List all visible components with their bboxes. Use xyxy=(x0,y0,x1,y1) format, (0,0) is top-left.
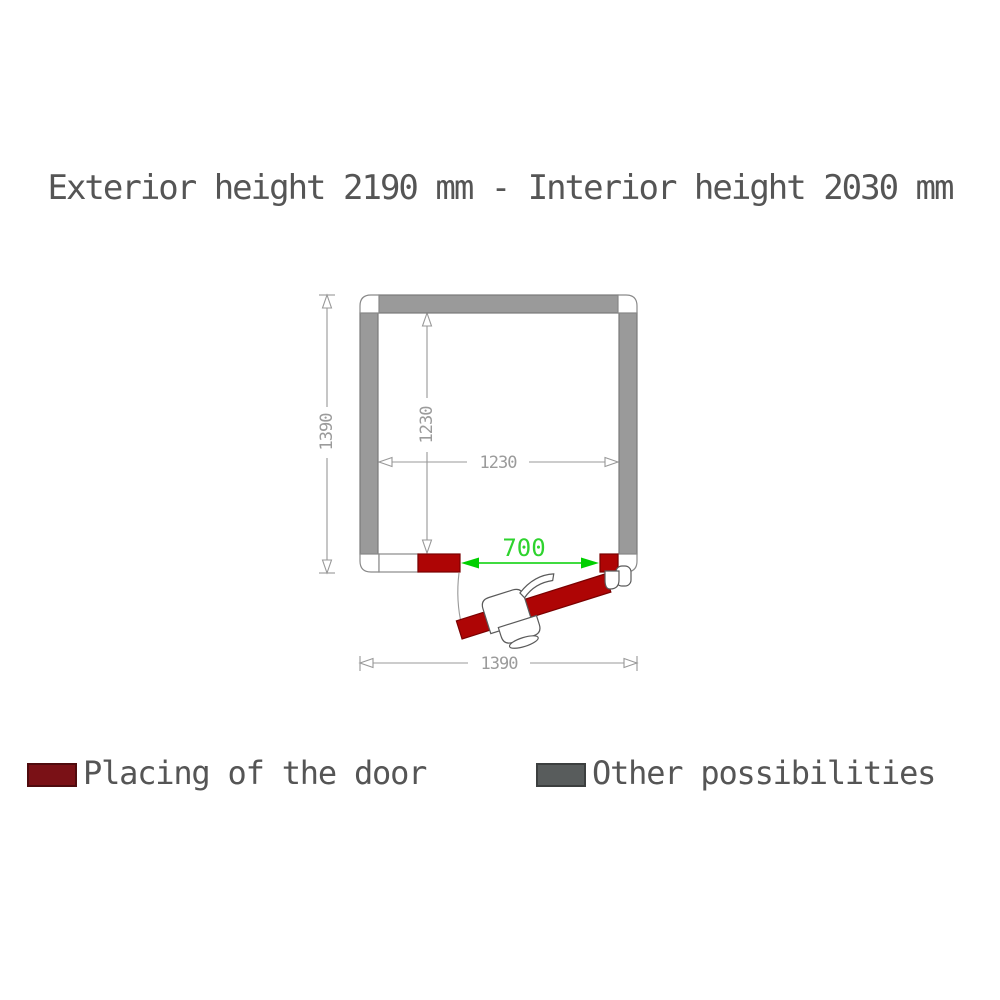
green-arrow-right-icon xyxy=(581,558,599,569)
green-arrow-left-icon xyxy=(461,558,479,569)
dimension-interior-height: 1230 xyxy=(417,313,437,553)
door-jamb-left xyxy=(418,554,460,572)
legend-item-door: Placing of the door xyxy=(27,758,426,792)
arrow-up-icon xyxy=(423,313,432,326)
dimension-exterior-height-label: 1390 xyxy=(317,413,337,451)
hinge-pin-icon xyxy=(605,571,619,589)
door-jamb-right xyxy=(600,554,618,572)
corner-bottom-left xyxy=(360,554,379,572)
door-color-swatch-icon xyxy=(27,763,77,787)
arrow-left-icon xyxy=(379,458,392,467)
dimension-interior-height-label: 1230 xyxy=(417,406,437,444)
arrow-down-icon xyxy=(323,560,332,573)
dimension-interior-width-label: 1230 xyxy=(480,453,518,473)
walls xyxy=(360,295,637,572)
wall-right xyxy=(619,313,637,554)
legend-label-door: Placing of the door xyxy=(83,754,426,792)
dimension-exterior-height: 1390 xyxy=(317,295,337,573)
dimension-interior-width: 1230 xyxy=(379,453,618,473)
dimension-door-opening-label: 700 xyxy=(502,534,545,562)
wall-left xyxy=(360,313,378,554)
arrow-right-icon xyxy=(624,659,637,668)
corner-top-left xyxy=(360,295,379,313)
arrow-up-icon xyxy=(323,295,332,308)
other-color-swatch-icon xyxy=(536,763,586,787)
floor-plan-diagram: 1390 1230 1230 1390 xyxy=(0,0,1000,1000)
corner-top-right xyxy=(618,295,637,313)
wall-top xyxy=(379,295,618,313)
door-leaf-group xyxy=(451,558,618,664)
legend-label-other: Other possibilities xyxy=(592,754,935,792)
dimension-door-opening: 700 xyxy=(461,534,599,569)
dimension-exterior-width-label: 1390 xyxy=(481,654,519,674)
wall-bottom-white-segment xyxy=(379,554,418,572)
dimension-exterior-width: 1390 xyxy=(360,654,637,674)
legend: Placing of the door Other possibilities xyxy=(0,758,1000,798)
legend-item-other: Other possibilities xyxy=(536,758,935,792)
page: Exterior height 2190 mm - Interior heigh… xyxy=(0,0,1000,1000)
arrow-right-icon xyxy=(605,458,618,467)
arrow-left-icon xyxy=(360,659,373,668)
arrow-down-icon xyxy=(423,540,432,553)
